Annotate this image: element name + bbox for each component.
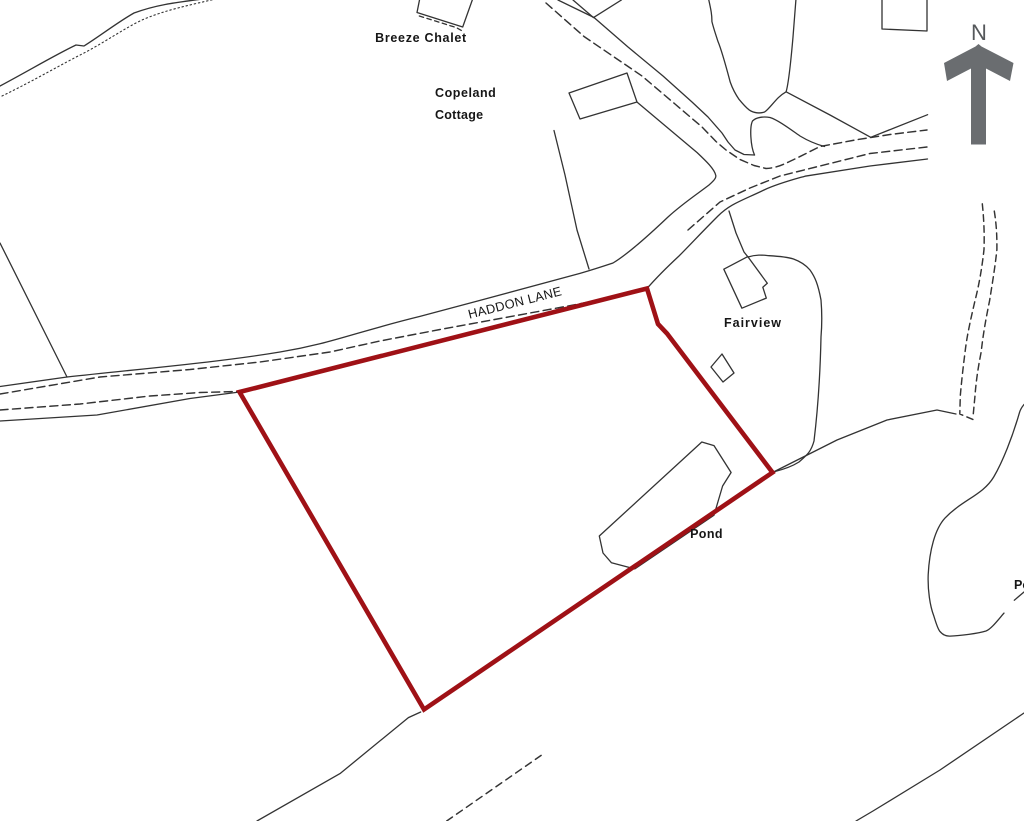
svg-text:HADDON LANE: HADDON LANE [466, 283, 563, 321]
svg-text:Pond: Pond [1014, 578, 1024, 592]
svg-text:N: N [971, 20, 987, 45]
svg-text:Cottage: Cottage [435, 108, 483, 122]
svg-text:Fairview: Fairview [724, 316, 782, 330]
svg-text:Copeland: Copeland [435, 86, 496, 100]
svg-text:Breeze Chalet: Breeze Chalet [375, 31, 467, 45]
svg-text:Pond: Pond [690, 527, 723, 541]
